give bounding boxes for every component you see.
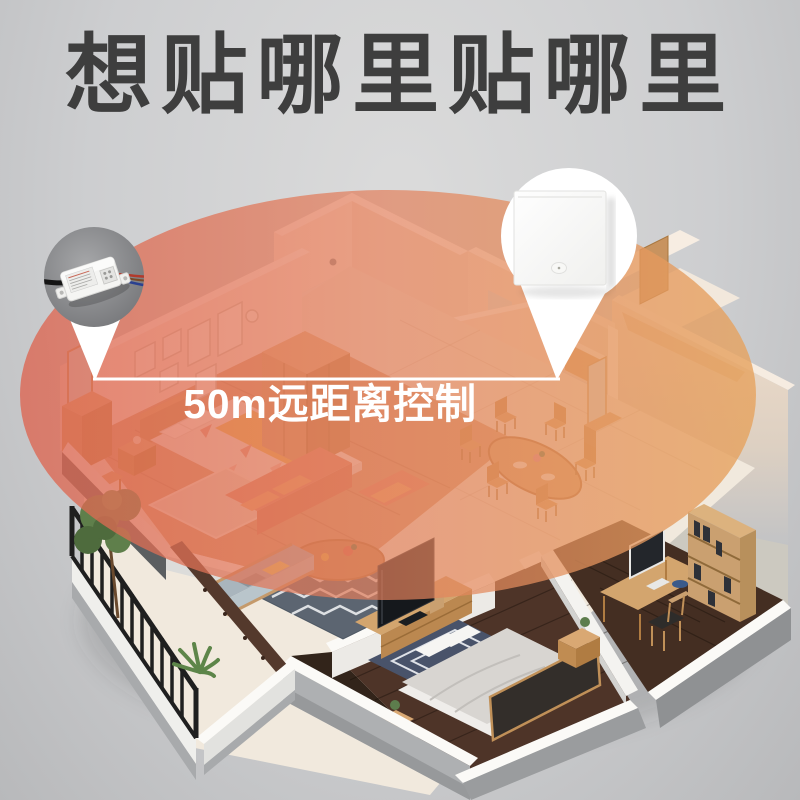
wireless-wall-switch-icon xyxy=(514,191,615,298)
switch-callout xyxy=(501,168,637,304)
range-distance-label: 50m远距离控制 xyxy=(120,384,540,425)
mousepad xyxy=(672,580,688,588)
page-title: 想贴哪里贴哪里 xyxy=(0,28,800,124)
